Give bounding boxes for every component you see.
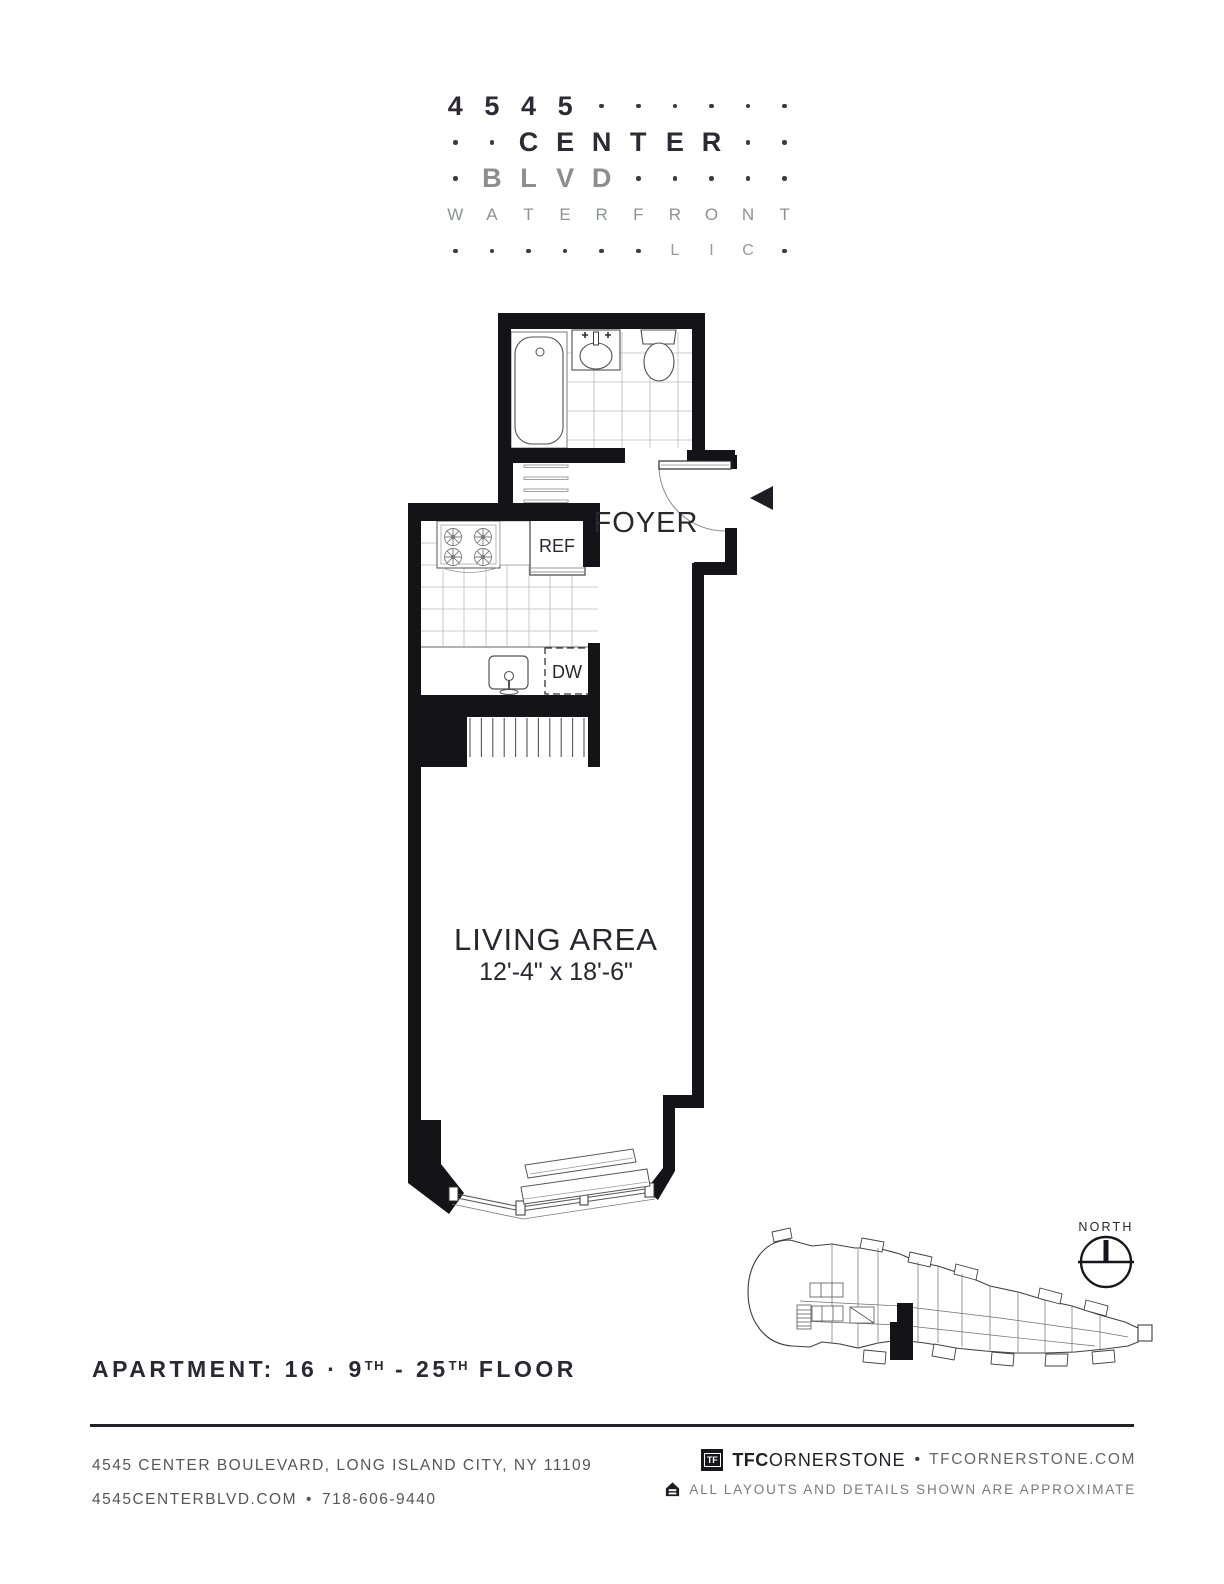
closet-rod-lines: [470, 718, 584, 757]
equal-housing-icon: [664, 1481, 681, 1498]
building-footprint: [748, 1228, 1152, 1366]
bath-sink-basin: [580, 343, 612, 369]
ref-label: REF: [539, 536, 575, 556]
floor-start-ordinal: TH: [365, 1358, 385, 1373]
tfc-logo-letters: TF: [704, 1453, 721, 1467]
tub-drain: [536, 348, 544, 356]
footer-brand: TF TFCORNERSTONE • TFCORNERSTONE.COM ALL…: [664, 1447, 1136, 1498]
apartment-number: APARTMENT: 16: [92, 1356, 317, 1382]
floor-start: 9: [348, 1356, 364, 1382]
floor-range-dash: -: [395, 1356, 406, 1382]
floor-plan-drawing: REF DW: [0, 0, 1224, 1584]
disclaimer-text: ALL LAYOUTS AND DETAILS SHOWN ARE APPROX…: [689, 1482, 1136, 1497]
floorplan-page: { "logo": { "rows": [ [{"t":"4","s":"b"}…: [0, 0, 1224, 1584]
toilet-bowl: [644, 343, 674, 381]
building-website: 4545CENTERBLVD.COM: [92, 1491, 297, 1508]
brand-bullet: •: [915, 1451, 921, 1469]
bathroom: [511, 330, 676, 448]
floor-word: FLOOR: [479, 1356, 577, 1382]
floor-end: 25: [416, 1356, 449, 1382]
north-compass: NORTH: [1078, 1220, 1134, 1287]
headline-separator: ·: [327, 1356, 338, 1382]
building-address: 4545 CENTER BOULEVARD, LONG ISLAND CITY,…: [92, 1449, 592, 1483]
closet-shelves: [524, 465, 568, 503]
brand-name-bold: TFC: [732, 1450, 769, 1470]
bath-faucet: [594, 332, 599, 345]
building-phone: 718-606-9440: [322, 1491, 437, 1508]
entry-arrow: [750, 486, 773, 510]
apartment-headline: APARTMENT: 16·9TH - 25TH FLOOR: [92, 1356, 577, 1383]
wall-bay-right: [646, 1095, 704, 1200]
building-web-phone: 4545CENTERBLVD.COM•718-606-9440: [92, 1483, 592, 1517]
walls: [408, 313, 737, 1214]
bay-windows: [449, 1149, 655, 1219]
bullet-separator: •: [306, 1491, 313, 1508]
dw-label: DW: [552, 662, 582, 682]
kitchen: REF DW: [421, 518, 590, 695]
north-label: NORTH: [1078, 1220, 1133, 1234]
toilet-tank: [641, 330, 676, 344]
brand-name-rest: ORNERSTONE: [769, 1450, 906, 1470]
living-area-dimensions: 12'-4" x 18'-6": [479, 958, 633, 986]
footer-contact: 4545 CENTER BOULEVARD, LONG ISLAND CITY,…: [92, 1449, 592, 1517]
footer-divider: [90, 1424, 1134, 1427]
brand-name: TFCORNERSTONE: [732, 1450, 905, 1471]
brand-website: TFCORNERSTONE.COM: [929, 1451, 1136, 1469]
tfc-logo-icon: TF: [701, 1449, 723, 1471]
foyer-label: FOYER: [594, 507, 699, 539]
floor-end-ordinal: TH: [449, 1358, 469, 1373]
counter-strip: [500, 521, 530, 565]
living-area-label: LIVING AREA: [454, 922, 658, 957]
kitchen-faucet: [505, 672, 514, 681]
